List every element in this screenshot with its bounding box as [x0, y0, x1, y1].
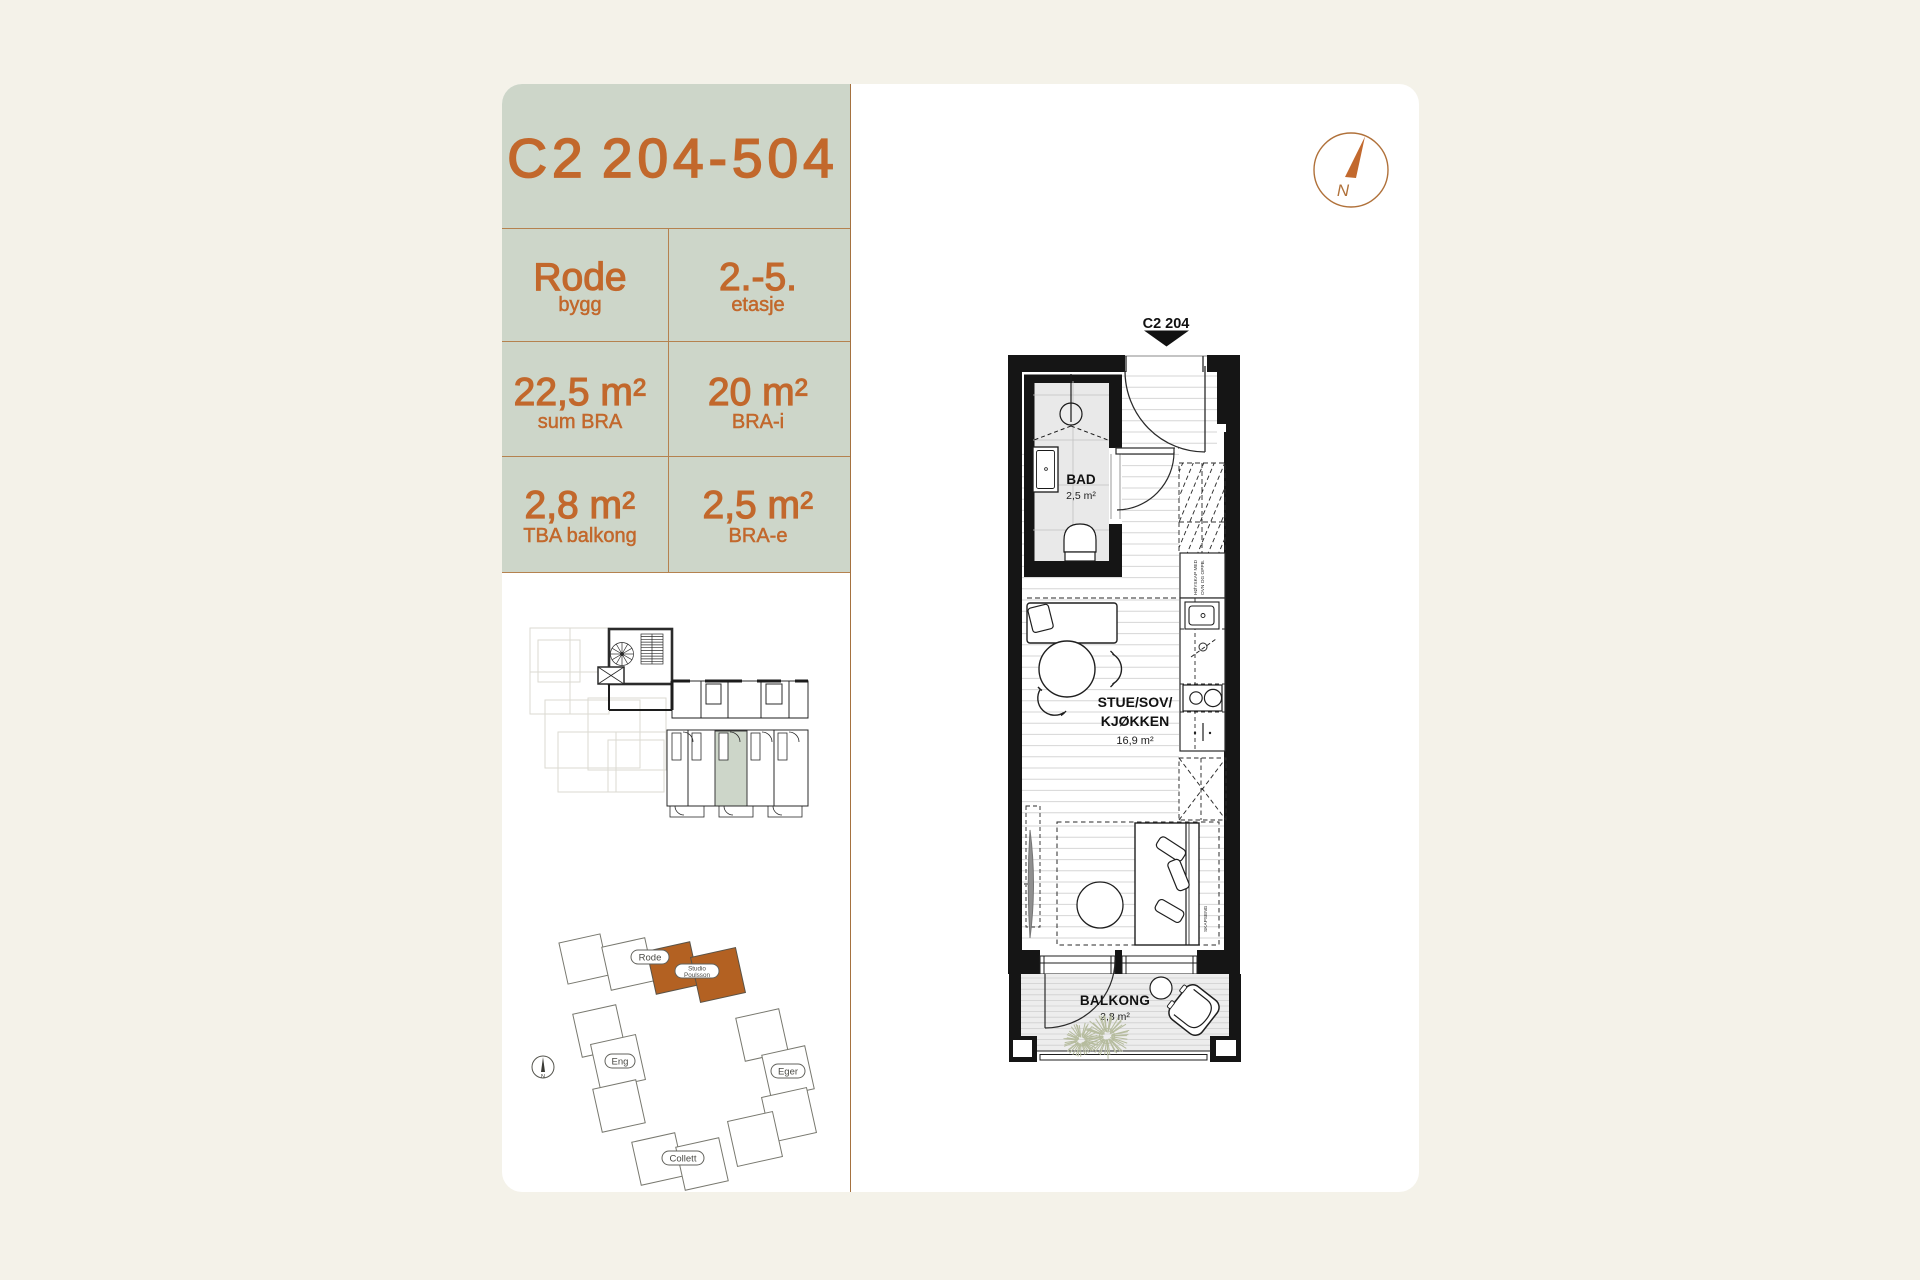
svg-text:SKAPSENG: SKAPSENG	[1203, 905, 1209, 932]
svg-text:Collett: Collett	[670, 1154, 697, 1165]
svg-text:BALKONG: BALKONG	[1080, 993, 1150, 1008]
svg-text:16,9 m²: 16,9 m²	[1116, 735, 1154, 747]
svg-text:Eger: Eger	[778, 1067, 798, 1078]
svg-text:N: N	[1337, 181, 1350, 200]
svg-text:Eng: Eng	[612, 1057, 629, 1068]
svg-text:BAD: BAD	[1066, 472, 1095, 487]
svg-text:N: N	[541, 1074, 545, 1080]
svg-text:C2 204: C2 204	[1143, 316, 1190, 332]
svg-text:KJØKKEN: KJØKKEN	[1101, 713, 1169, 729]
svg-text:2,5 m²: 2,5 m²	[1066, 490, 1096, 502]
svg-text:HØYSKAP MED: HØYSKAP MED	[1193, 559, 1199, 595]
svg-text:OVN OG OPPB.: OVN OG OPPB.	[1200, 560, 1206, 595]
svg-text:Poulsson: Poulsson	[684, 972, 710, 979]
svg-text:Rode: Rode	[639, 953, 662, 964]
svg-text:STUE/SOV/: STUE/SOV/	[1098, 694, 1173, 710]
